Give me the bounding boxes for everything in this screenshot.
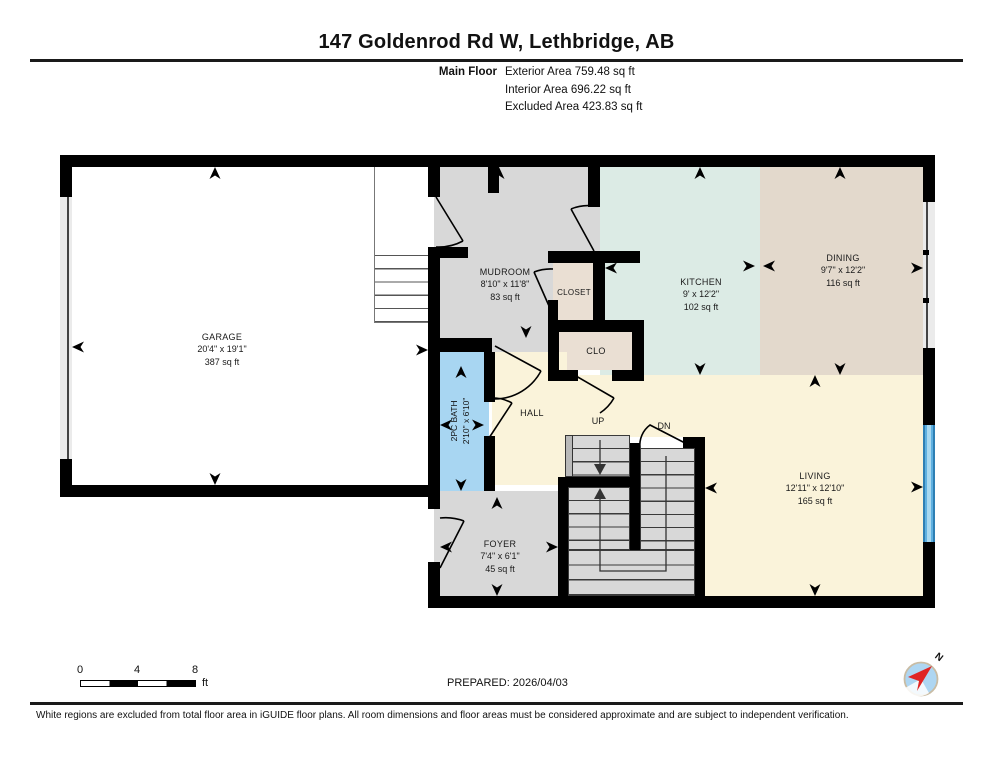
garage-label: GARAGE 20'4" x 19'1" 387 sq ft bbox=[197, 331, 246, 368]
dim-arrow-right bbox=[546, 542, 558, 553]
garage-name: GARAGE bbox=[197, 331, 246, 343]
dim-arrow-up bbox=[494, 167, 505, 179]
hall-name: HALL bbox=[520, 407, 544, 419]
dim-arrow-up bbox=[810, 375, 821, 387]
stair-down-arrowhead bbox=[594, 464, 606, 475]
dining-name: DINING bbox=[821, 252, 865, 264]
door-arc-clo bbox=[576, 376, 614, 413]
bath-label: 2PC BATH 2'10" x 6'10" bbox=[449, 373, 473, 469]
plan-annotations bbox=[0, 0, 993, 768]
hall-label: HALL bbox=[520, 407, 544, 419]
door-arc-bath bbox=[489, 398, 512, 438]
foyer-name: FOYER bbox=[480, 538, 519, 550]
clo-label: CLO bbox=[586, 345, 605, 357]
dim-arrow-down bbox=[695, 363, 706, 375]
kitchen-area: 102 sq ft bbox=[680, 301, 722, 313]
foyer-area: 45 sq ft bbox=[480, 563, 519, 575]
dim-arrow-up bbox=[492, 497, 503, 509]
dim-arrow-up bbox=[210, 167, 221, 179]
bath-dims: 2'10" x 6'10" bbox=[461, 373, 473, 469]
dim-arrow-right bbox=[416, 345, 428, 356]
door-arc-front-entry bbox=[440, 518, 464, 568]
stair-up-path bbox=[600, 456, 666, 571]
dim-arrow-right bbox=[911, 482, 923, 493]
dim-arrow-right bbox=[911, 263, 923, 274]
door-arc-kitchen-mudroom bbox=[571, 206, 594, 251]
dim-arrow-up bbox=[695, 167, 706, 179]
kitchen-name: KITCHEN bbox=[680, 276, 722, 288]
dining-area: 116 sq ft bbox=[821, 277, 865, 289]
compass-icon bbox=[905, 663, 938, 697]
dim-arrow-left bbox=[705, 483, 717, 494]
dim-arrow-down bbox=[810, 584, 821, 596]
kitchen-dims: 9' x 12'2" bbox=[680, 288, 722, 300]
foyer-dims: 7'4" x 6'1" bbox=[480, 550, 519, 562]
dining-dims: 9'7" x 12'2" bbox=[821, 264, 865, 276]
dim-arrow-down bbox=[210, 473, 221, 485]
stairs-dn-label: DN bbox=[658, 421, 671, 431]
living-name: LIVING bbox=[786, 470, 845, 482]
kitchen-label: KITCHEN 9' x 12'2" 102 sq ft bbox=[680, 276, 722, 313]
dining-label: DINING 9'7" x 12'2" 116 sq ft bbox=[821, 252, 865, 289]
dimension-arrows bbox=[72, 167, 923, 596]
dim-arrow-right bbox=[472, 420, 484, 431]
living-dims: 12'11" x 12'10" bbox=[786, 482, 845, 494]
living-label: LIVING 12'11" x 12'10" 165 sq ft bbox=[786, 470, 845, 507]
dim-arrow-down bbox=[835, 363, 846, 375]
dim-arrow-down bbox=[456, 479, 467, 491]
door-arc-mudroom-hall bbox=[495, 346, 541, 399]
dim-arrow-down bbox=[521, 326, 532, 338]
mudroom-label: MUDROOM 8'10" x 11'8" 83 sq ft bbox=[480, 266, 531, 303]
dim-arrow-left bbox=[763, 261, 775, 272]
stair-arrowheads bbox=[594, 464, 606, 499]
dim-arrow-up bbox=[835, 167, 846, 179]
closet-label: CLOSET bbox=[557, 287, 591, 298]
floorplan-page: 147 Goldenrod Rd W, Lethbridge, AB Main … bbox=[0, 0, 993, 768]
dim-arrow-down bbox=[492, 584, 503, 596]
dim-arrow-left bbox=[72, 342, 84, 353]
dim-arrow-left bbox=[605, 263, 617, 274]
bath-name: 2PC BATH bbox=[449, 373, 461, 469]
door-arc-garage-mudroom bbox=[436, 197, 463, 247]
garage-area: 387 sq ft bbox=[197, 356, 246, 368]
closet-name: CLOSET bbox=[557, 287, 591, 298]
stair-guides bbox=[600, 440, 666, 571]
foyer-label: FOYER 7'4" x 6'1" 45 sq ft bbox=[480, 538, 519, 575]
stairs-up-label: UP bbox=[592, 416, 605, 426]
dim-arrow-right bbox=[743, 261, 755, 272]
living-area: 165 sq ft bbox=[786, 495, 845, 507]
mudroom-name: MUDROOM bbox=[480, 266, 531, 278]
garage-dims: 20'4" x 19'1" bbox=[197, 343, 246, 355]
clo-name: CLO bbox=[586, 345, 605, 357]
mudroom-dims: 8'10" x 11'8" bbox=[480, 278, 531, 290]
stair-up-arrowhead bbox=[594, 488, 606, 499]
mudroom-area: 83 sq ft bbox=[480, 291, 531, 303]
door-arc-closet bbox=[534, 269, 553, 315]
door-arcs bbox=[436, 197, 685, 568]
